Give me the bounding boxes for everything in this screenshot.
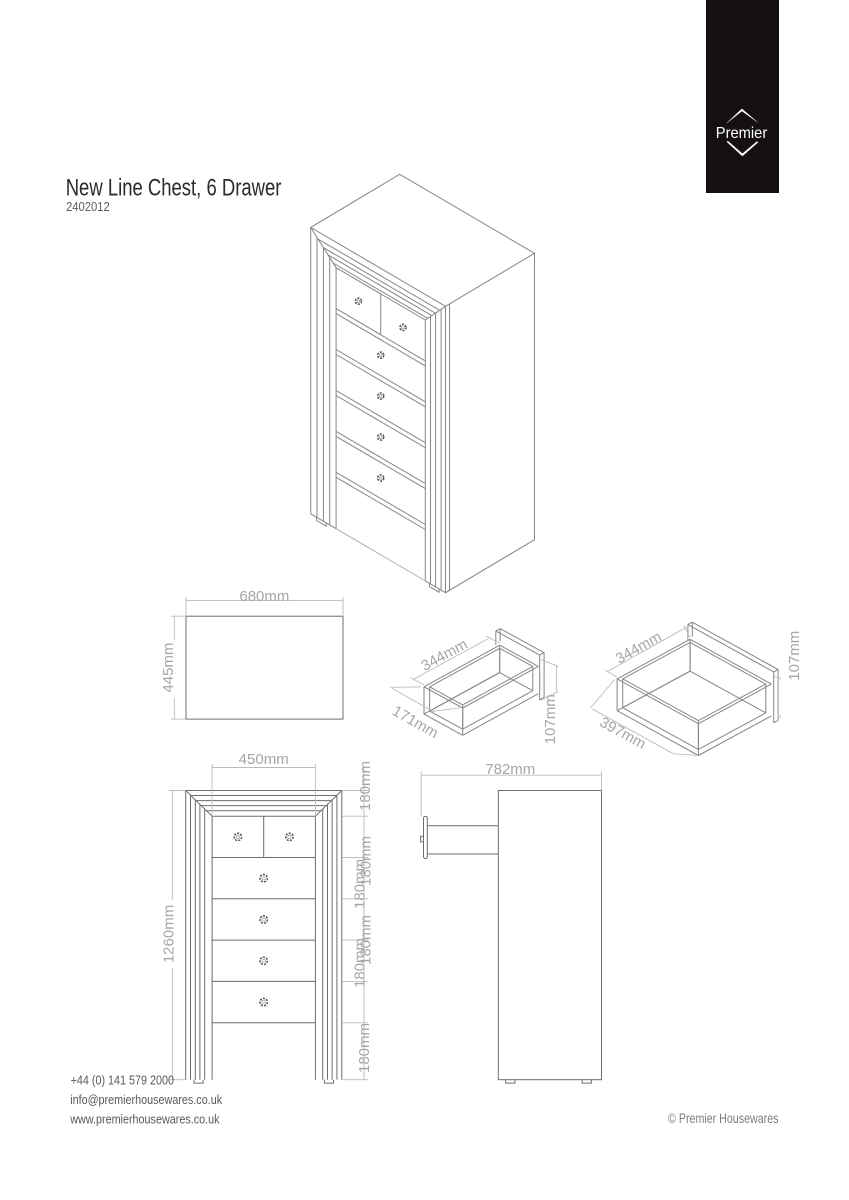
svg-text:1260mm: 1260mm bbox=[160, 905, 177, 963]
svg-text:107mm: 107mm bbox=[786, 631, 803, 681]
svg-text:450mm: 450mm bbox=[239, 751, 289, 768]
svg-text:Premier: Premier bbox=[716, 125, 767, 143]
svg-text:2402012: 2402012 bbox=[66, 199, 110, 214]
svg-text:344mm: 344mm bbox=[613, 628, 665, 667]
svg-text:107mm: 107mm bbox=[542, 694, 559, 744]
svg-text:397mm: 397mm bbox=[597, 714, 649, 753]
svg-text:New Line Chest, 6 Drawer: New Line Chest, 6 Drawer bbox=[66, 174, 282, 201]
svg-text:www.premierhousewares.co.uk: www.premierhousewares.co.uk bbox=[69, 1112, 219, 1127]
svg-text:680mm: 680mm bbox=[239, 588, 289, 605]
svg-text:180mm: 180mm bbox=[351, 938, 368, 988]
svg-text:782mm: 782mm bbox=[485, 761, 535, 778]
svg-text:info@premierhousewares.co.uk: info@premierhousewares.co.uk bbox=[70, 1092, 222, 1107]
svg-text:180mm: 180mm bbox=[357, 761, 374, 811]
svg-text:180mm: 180mm bbox=[351, 859, 368, 909]
svg-text:+44 (0) 141 579 2000: +44 (0) 141 579 2000 bbox=[71, 1072, 175, 1087]
svg-text:180mm: 180mm bbox=[356, 1023, 373, 1073]
svg-text:445mm: 445mm bbox=[160, 643, 177, 693]
svg-text:© Premier Housewares: © Premier Housewares bbox=[668, 1111, 778, 1127]
